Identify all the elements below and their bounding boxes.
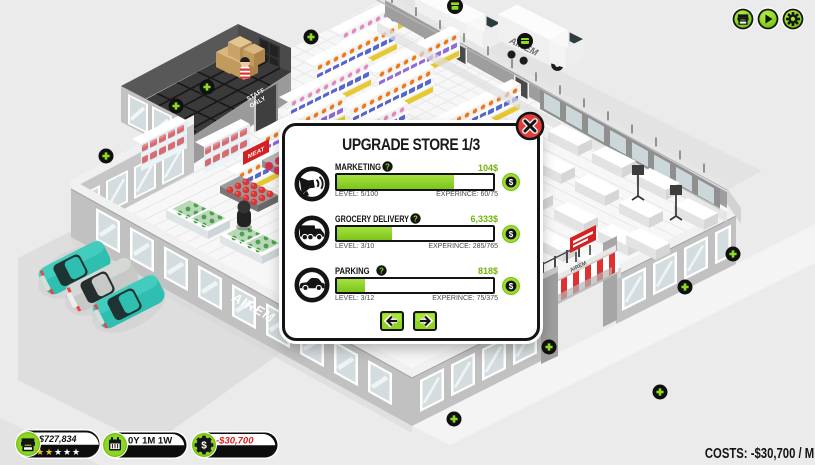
svg-text:-$30,700: -$30,700 <box>216 436 254 447</box>
svg-text:$: $ <box>508 282 513 291</box>
svg-text:★: ★ <box>54 447 62 457</box>
svg-text:$: $ <box>508 178 513 187</box>
svg-text:?: ? <box>379 266 384 275</box>
svg-text:★: ★ <box>72 447 80 457</box>
svg-text:★: ★ <box>45 447 53 457</box>
svg-text:$: $ <box>508 230 513 239</box>
svg-text:0Y 1M 1W: 0Y 1M 1W <box>128 436 172 447</box>
svg-text:★: ★ <box>63 447 71 457</box>
svg-text:$727,834: $727,834 <box>38 434 77 444</box>
svg-text:?: ? <box>385 163 390 172</box>
svg-text:$: $ <box>201 440 207 451</box>
